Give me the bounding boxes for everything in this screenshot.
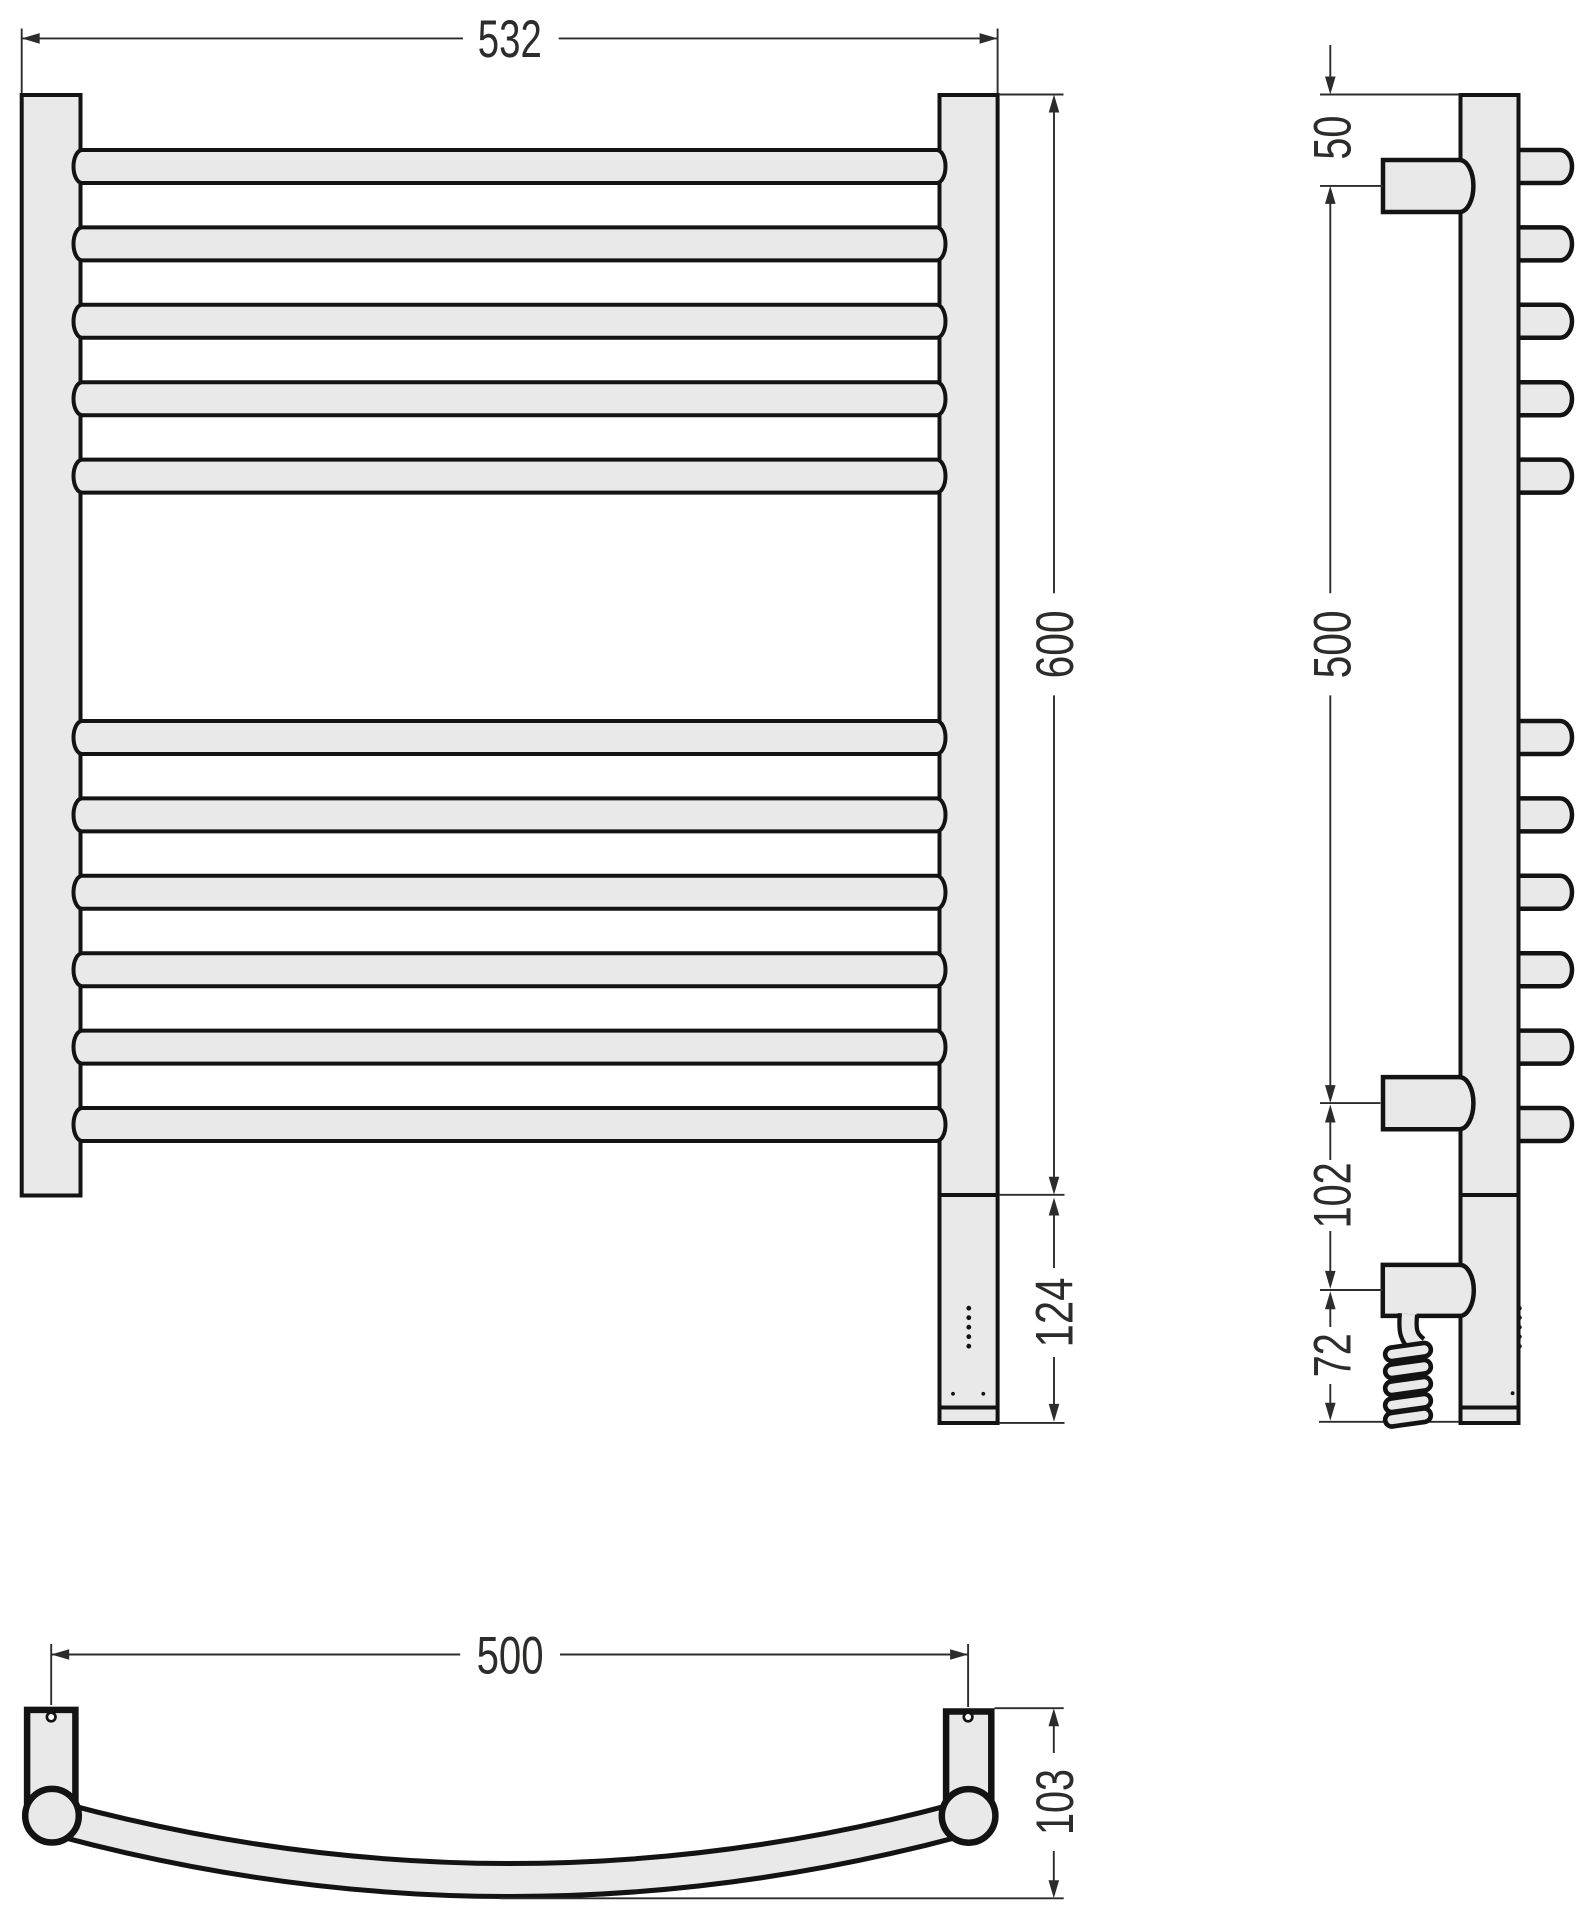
svg-text:500: 500 bbox=[1304, 610, 1363, 678]
svg-text:50: 50 bbox=[1304, 116, 1363, 160]
svg-text:124: 124 bbox=[1025, 1278, 1084, 1348]
svg-text:102: 102 bbox=[1304, 1162, 1363, 1228]
svg-text:500: 500 bbox=[477, 1626, 544, 1685]
svg-text:600: 600 bbox=[1026, 610, 1085, 678]
svg-text:532: 532 bbox=[478, 10, 542, 69]
svg-text:103: 103 bbox=[1026, 1769, 1085, 1835]
svg-text:72: 72 bbox=[1304, 1333, 1363, 1377]
